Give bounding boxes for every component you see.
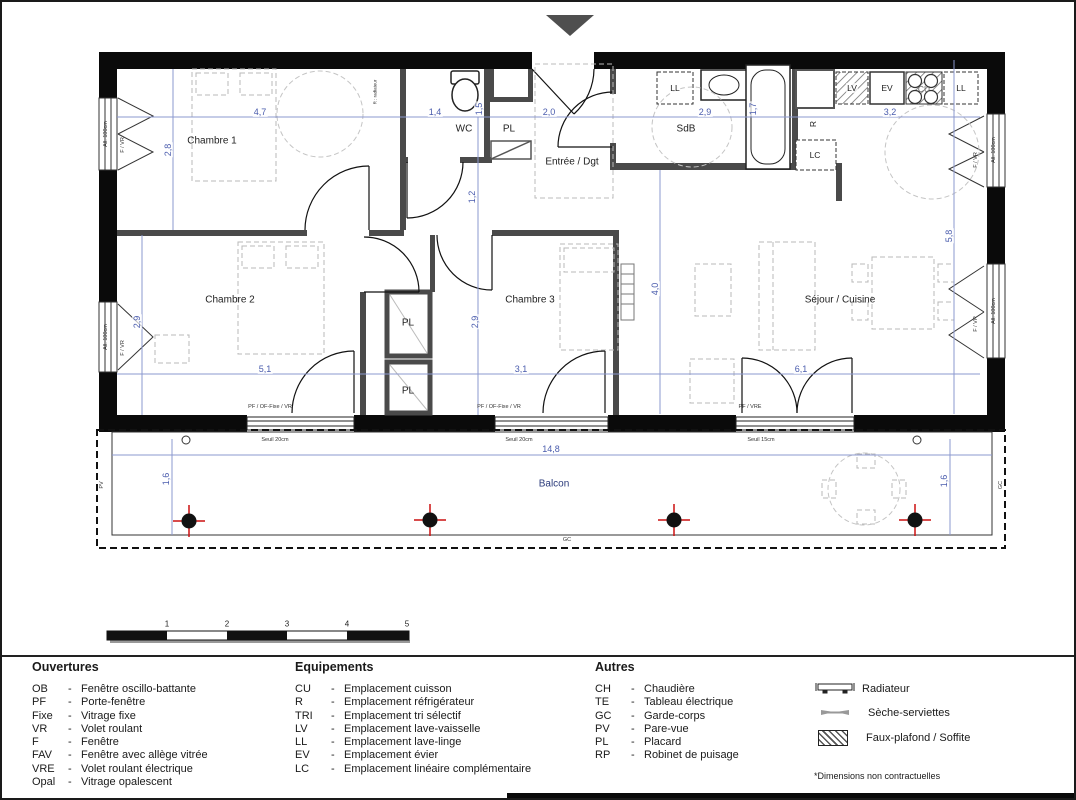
legend-item: PL-Placard — [595, 736, 815, 749]
abbr: Opal — [32, 776, 68, 789]
dim-2-9-ch3: 2,9 — [470, 315, 480, 330]
fridge-box — [796, 70, 834, 108]
seuil-label-2: Seuil 20cm — [505, 437, 532, 443]
legend-item: VRE-Volet roulant électrique — [32, 763, 290, 776]
legend-item: TRI-Emplacement tri sélectif — [295, 710, 585, 723]
dash: - — [68, 736, 81, 749]
abbr: R — [295, 696, 331, 709]
door-type-label-1: PF / OF-Fixe / VR — [248, 404, 292, 410]
fvr-label-4: F / VR — [973, 316, 979, 332]
abbr: EV — [295, 749, 331, 762]
dim-3-1: 3,1 — [514, 364, 529, 374]
room-label-chambre2: Chambre 2 — [205, 295, 254, 306]
dim-1-6-right: 1,6 — [939, 474, 949, 489]
closet-label-pl-1: PL — [402, 318, 414, 329]
legend-item: FAV-Fenêtre avec allège vitrée — [32, 749, 290, 762]
pv-label-left: PV — [99, 481, 105, 488]
desc: Vitrage opalescent — [81, 776, 172, 789]
abbr: TE — [595, 696, 631, 709]
room-label-chambre1: Chambre 1 — [187, 136, 236, 147]
dash: - — [331, 736, 344, 749]
legend-ouvertures: Ouvertures OB-Fenêtre oscillo-battante P… — [32, 660, 290, 789]
abbr: LC — [295, 763, 331, 776]
desc: Placard — [644, 736, 681, 749]
dash: - — [631, 749, 644, 762]
sill-label-1: All. 100cm — [103, 121, 109, 147]
scale-tick-2: 2 — [225, 620, 229, 629]
dash: - — [331, 710, 344, 723]
room-label-sejour: Séjour / Cuisine — [805, 295, 876, 306]
symbol-label: Radiateur — [862, 683, 910, 695]
legend-symbol-faux-plafond: Faux-plafond / Soffite — [814, 730, 1064, 746]
symbol-label: Faux-plafond / Soffite — [866, 732, 970, 744]
scalebar-graphic — [107, 631, 410, 643]
dim-1-5: 1,5 — [474, 102, 484, 117]
abbr: Fixe — [32, 710, 68, 723]
desc: Robinet de puisage — [644, 749, 739, 762]
sill-label-4: All. 100cm — [991, 298, 997, 324]
abbr: F — [32, 736, 68, 749]
legend-symbols: Radiateur Sèche-serviettes Faux-plafond … — [814, 682, 1064, 757]
abbr: VRE — [32, 763, 68, 776]
equip-label-cu: CU — [917, 84, 931, 94]
desc: Chaudière — [644, 683, 695, 696]
dash: - — [631, 710, 644, 723]
abbr: GC — [595, 710, 631, 723]
dash: - — [631, 736, 644, 749]
dash: - — [331, 683, 344, 696]
entrance-arrow-icon — [546, 15, 594, 36]
abbr: PL — [595, 736, 631, 749]
dim-1-7: 1,7 — [748, 102, 758, 117]
desc: Porte-fenêtre — [81, 696, 145, 709]
dash: - — [68, 710, 81, 723]
legend-item: GC-Garde-corps — [595, 710, 815, 723]
equip-label-ll-kitchen: LL — [955, 83, 966, 93]
scale-tick-3: 3 — [285, 620, 289, 629]
scale-tick-1: 1 — [165, 620, 169, 629]
legend-item: LC-Emplacement linéaire complémentaire — [295, 763, 585, 776]
desc: Volet roulant électrique — [81, 763, 193, 776]
thresholds — [247, 417, 854, 430]
desc: Emplacement lave-linge — [344, 736, 461, 749]
legend-header-ouvertures: Ouvertures — [32, 660, 290, 674]
gc-label-right: GC — [998, 481, 1004, 489]
seuil-label-3: Seuil 15cm — [747, 437, 774, 443]
dash: - — [631, 683, 644, 696]
dash: - — [331, 696, 344, 709]
dim-2-9-sdb: 2,9 — [698, 107, 713, 117]
soffit-symbol-icon — [814, 730, 866, 746]
room-label-balcon: Balcon — [539, 479, 570, 490]
dim-2-8: 2,8 — [163, 143, 173, 158]
abbr: VR — [32, 723, 68, 736]
dash: - — [68, 763, 81, 776]
room-label-chambre3: Chambre 3 — [505, 295, 554, 306]
legend-item: TE-Tableau électrique — [595, 696, 815, 709]
legend-equipements: Equipements CU-Emplacement cuisson R-Emp… — [295, 660, 585, 776]
radiator-icon — [621, 264, 634, 320]
legend-item: RP-Robinet de puisage — [595, 749, 815, 762]
desc: Garde-corps — [644, 710, 705, 723]
scale-tick-4: 4 — [345, 620, 349, 629]
fvr-label-1: F / VR — [120, 137, 126, 153]
desc: Fenêtre oscillo-battante — [81, 683, 196, 696]
dash: - — [331, 749, 344, 762]
legend-item: EV-Emplacement évier — [295, 749, 585, 762]
closet-label-pl-2: PL — [402, 386, 414, 397]
radiator-note: R : radiateur — [373, 80, 378, 105]
sill-label-2: All. 100cm — [103, 324, 109, 350]
dash: - — [68, 749, 81, 762]
fvr-label-2: F / VR — [120, 340, 126, 356]
abbr: LV — [295, 723, 331, 736]
desc: Emplacement linéaire complémentaire — [344, 763, 531, 776]
abbr: PF — [32, 696, 68, 709]
legend-symbol-radiateur: Radiateur — [814, 682, 1064, 696]
symbol-label: Sèche-serviettes — [868, 707, 950, 719]
abbr: CH — [595, 683, 631, 696]
dim-14-8: 14,8 — [541, 444, 561, 454]
dash: - — [331, 723, 344, 736]
desc: Emplacement cuisson — [344, 683, 452, 696]
legend-item: CH-Chaudière — [595, 683, 815, 696]
desc: Emplacement réfrigérateur — [344, 696, 474, 709]
legend-item: VR-Volet roulant — [32, 723, 290, 736]
dim-5-1: 5,1 — [258, 364, 273, 374]
gc-label-mid: GC — [563, 537, 571, 543]
desc: Fenêtre avec allège vitrée — [81, 749, 208, 762]
seuil-label-1: Seuil 20cm — [261, 437, 288, 443]
door-type-label-3: PF / VRE — [739, 404, 762, 410]
desc: Volet roulant — [81, 723, 142, 736]
legend-note: *Dimensions non contractuelles — [814, 771, 940, 781]
dash: - — [68, 696, 81, 709]
dim-2-9-ch2: 2,9 — [132, 315, 142, 330]
room-label-wc: WC — [456, 124, 473, 135]
desc: Tableau électrique — [644, 696, 733, 709]
desc: Emplacement évier — [344, 749, 438, 762]
legend-item: F-Fenêtre — [32, 736, 290, 749]
desc: Emplacement lave-vaisselle — [344, 723, 480, 736]
legend-item: R-Emplacement réfrigérateur — [295, 696, 585, 709]
dim-3-2: 3,2 — [883, 107, 898, 117]
abbr: RP — [595, 749, 631, 762]
dash: - — [68, 776, 81, 789]
dim-6-1: 6,1 — [794, 364, 809, 374]
desc: Pare-vue — [644, 723, 689, 736]
legend-symbol-seche-serviettes: Sèche-serviettes — [814, 707, 1064, 719]
equip-label-ll-sdb: LL — [669, 83, 680, 93]
dim-4-7: 4,7 — [253, 107, 268, 117]
legend-item: OB-Fenêtre oscillo-battante — [32, 683, 290, 696]
desc: Fenêtre — [81, 736, 119, 749]
dim-1-6-left: 1,6 — [161, 472, 171, 487]
desc: Vitrage fixe — [81, 710, 136, 723]
dash: - — [631, 723, 644, 736]
interior-walls — [117, 69, 842, 415]
floorplan-page: Chambre 1 WC PL Entrée / Dgt SdB Chambre… — [0, 0, 1076, 800]
dash: - — [68, 683, 81, 696]
equip-label-r: R — [808, 120, 818, 128]
abbr: LL — [295, 736, 331, 749]
door-type-label-2: PF / OF-Fixe / VR — [477, 404, 521, 410]
dash: - — [68, 723, 81, 736]
abbr: FAV — [32, 749, 68, 762]
legend-item: PV-Pare-vue — [595, 723, 815, 736]
towel-dryer-symbol-icon — [814, 708, 868, 718]
abbr: PV — [595, 723, 631, 736]
scale-tick-5: 5 — [405, 620, 409, 629]
room-label-pl: PL — [503, 124, 515, 135]
equip-label-ev: EV — [880, 83, 893, 93]
sill-label-3: All. 100cm — [991, 137, 997, 163]
dash: - — [331, 763, 344, 776]
legend-item: CU-Emplacement cuisson — [295, 683, 585, 696]
equip-label-lc: LC — [809, 150, 822, 160]
radiator-symbol-icon — [814, 682, 862, 696]
drain-markers — [173, 504, 931, 537]
legend-item: LV-Emplacement lave-vaisselle — [295, 723, 585, 736]
legend-item: LL-Emplacement lave-linge — [295, 736, 585, 749]
dim-5-8: 5,8 — [944, 229, 954, 244]
shelf — [491, 141, 531, 159]
equip-label-lv: LV — [846, 83, 858, 93]
dim-1-4: 1,4 — [428, 107, 443, 117]
dim-1-2: 1,2 — [467, 190, 477, 205]
legend-header-autres: Autres — [595, 660, 815, 674]
legend-item: Fixe-Vitrage fixe — [32, 710, 290, 723]
room-label-sdb: SdB — [677, 124, 696, 135]
abbr: OB — [32, 683, 68, 696]
abbr: TRI — [295, 710, 331, 723]
abbr: CU — [295, 683, 331, 696]
desc: Emplacement tri sélectif — [344, 710, 461, 723]
legend-item: Opal-Vitrage opalescent — [32, 776, 290, 789]
dim-4-0: 4,0 — [650, 282, 660, 297]
dim-2-0: 2,0 — [542, 107, 557, 117]
legend-item: PF-Porte-fenêtre — [32, 696, 290, 709]
fvr-label-3: F / VR — [973, 152, 979, 168]
room-label-entree: Entrée / Dgt — [545, 157, 598, 168]
dash: - — [631, 696, 644, 709]
legend-autres: Autres CH-Chaudière TE-Tableau électriqu… — [595, 660, 815, 763]
legend-header-equipements: Equipements — [295, 660, 585, 674]
